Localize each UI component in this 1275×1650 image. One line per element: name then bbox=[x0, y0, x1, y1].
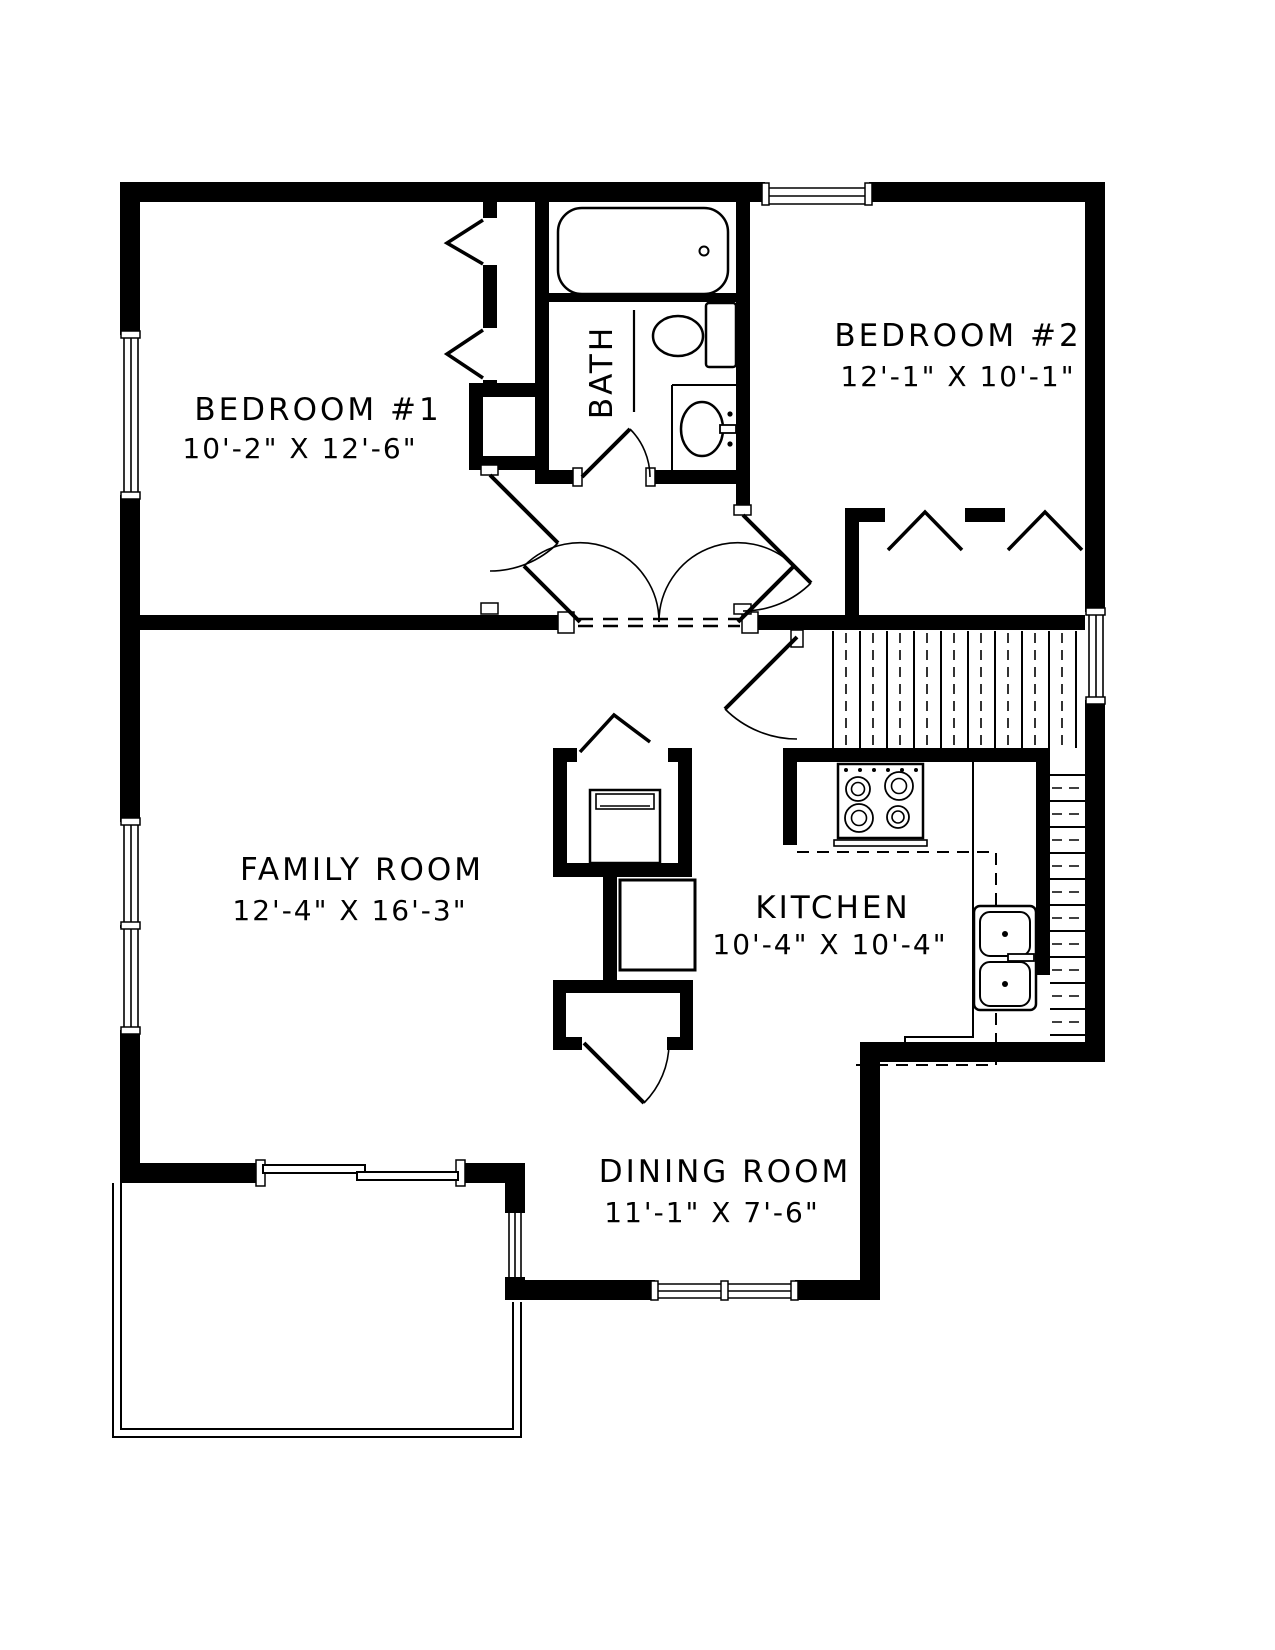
sliding-patio-door bbox=[256, 1160, 465, 1186]
room-kitchen bbox=[697, 762, 973, 1042]
utility-appliance bbox=[590, 790, 660, 863]
pantry-box bbox=[620, 880, 695, 970]
floor-plan-drawing: BEDROOM #1 10'-2" X 12'-6" BEDROOM #2 12… bbox=[0, 0, 1275, 1650]
door-bedroom1 bbox=[481, 465, 558, 614]
bifold-icon-utility-closet bbox=[580, 715, 650, 752]
room-dining bbox=[525, 1062, 860, 1280]
door-stairs bbox=[725, 630, 803, 739]
region-deck bbox=[121, 1183, 513, 1429]
window-left-family-lower bbox=[118, 922, 142, 1034]
stairs-upper-flight bbox=[833, 631, 1076, 748]
room-bedroom-2 bbox=[750, 202, 1085, 508]
room-bath bbox=[549, 202, 736, 470]
bifold-icon-bedroom2-left bbox=[888, 512, 962, 550]
room-bedroom-1 bbox=[140, 202, 483, 615]
door-bedroom2 bbox=[734, 505, 811, 614]
floor-plan-sheet: BEDROOM #1 10'-2" X 12'-6" BEDROOM #2 12… bbox=[0, 0, 1275, 1650]
window-left-family-upper bbox=[118, 818, 142, 925]
bifold-icon-bedroom2-right bbox=[1008, 512, 1082, 550]
double-kitchen-sink bbox=[974, 906, 1043, 1010]
window-left-bedroom1 bbox=[118, 331, 142, 499]
window-dining-south bbox=[651, 1278, 798, 1302]
room-family bbox=[140, 630, 553, 1163]
window-right-stair-landing bbox=[1083, 608, 1107, 704]
stairs-lower-flight bbox=[1050, 775, 1085, 1035]
